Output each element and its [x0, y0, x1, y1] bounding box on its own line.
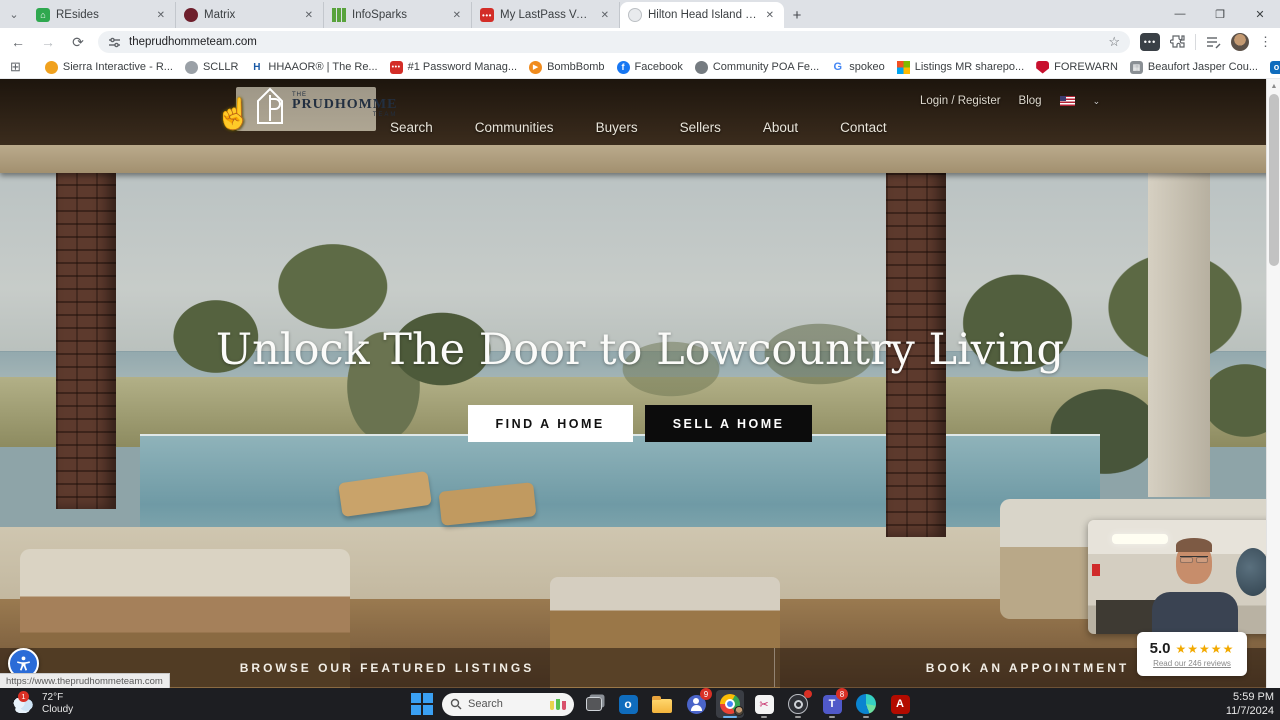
outlook-icon: o — [619, 695, 638, 714]
obs-recording-badge — [804, 690, 812, 698]
bookmark-bombbomb[interactable]: ▶BombBomb — [525, 60, 608, 75]
windows-logo-icon — [410, 692, 434, 716]
weather-temp: 72°F — [42, 692, 73, 705]
facebook-icon: f — [617, 61, 630, 74]
taskbar-clock[interactable]: 5:59 PM 11/7/2024 — [1226, 688, 1274, 720]
teams-badge: 8 — [836, 688, 848, 700]
logo-name: PRUDHOMME — [292, 98, 397, 112]
running-indicator — [897, 716, 903, 719]
reviews-badge: 5.0 ★★★★★ Read our 246 reviews — [1137, 632, 1247, 676]
bookmark-scllr[interactable]: SCLLR — [181, 60, 242, 75]
acrobat-icon: A — [891, 695, 910, 714]
taskbar-search-box[interactable]: Search — [442, 693, 574, 716]
running-indicator — [761, 716, 767, 719]
bookmark-label: Sierra Interactive - R... — [63, 61, 173, 73]
hero-photo-ceiling — [0, 79, 1280, 145]
webcam-exit-sign — [1092, 564, 1100, 576]
webcam-person-shirt — [1152, 592, 1238, 634]
nav-item-communities[interactable]: Communities — [475, 120, 554, 135]
sierra-icon — [45, 61, 58, 74]
clock-time: 5:59 PM — [1233, 690, 1274, 704]
google-icon: G — [831, 61, 844, 74]
weather-notification-badge: 1 — [18, 691, 29, 702]
accessibility-person-icon — [15, 655, 32, 672]
obs-taskbar-button[interactable] — [784, 690, 812, 718]
chrome-profile-mini-avatar — [734, 706, 744, 716]
scllr-icon — [185, 61, 198, 74]
clock-date: 11/7/2024 — [1226, 704, 1274, 718]
apps-grid-icon[interactable]: ⊞ — [10, 59, 21, 75]
task-view-button[interactable] — [580, 690, 608, 718]
webcam-person-hair — [1176, 538, 1212, 552]
bookmark-beaufort-jasper[interactable]: ▦Beaufort Jasper Cou... — [1126, 60, 1262, 75]
bookmark-label: Listings MR sharepo... — [915, 61, 1024, 73]
reload-icon[interactable]: ⟳ — [68, 34, 88, 51]
running-indicator — [723, 716, 737, 719]
chrome-taskbar-button[interactable] — [716, 690, 744, 718]
logo-text: THE PRUDHOMME TEAM — [292, 92, 397, 118]
site-info-tune-icon[interactable] — [108, 36, 121, 49]
tab-title: My LastPass Vault — [500, 9, 593, 21]
back-icon[interactable]: ← — [8, 34, 28, 50]
bookmark-label: spokeo — [849, 61, 884, 73]
building-icon: ▦ — [1130, 61, 1143, 74]
browser-tab-strip: ⌄ ⌂ REsides ✕ Matrix ✕ InfoSparks ✕ ••• … — [0, 0, 1280, 28]
bookmark-label: Community POA Fe... — [713, 61, 819, 73]
webcam-doorway — [1096, 600, 1156, 634]
teams-taskbar-button[interactable]: 8T — [818, 690, 846, 718]
file-explorer-icon — [652, 699, 672, 713]
tab-close-icon[interactable]: ✕ — [764, 10, 776, 21]
lastpass-favicon: ••• — [480, 8, 494, 22]
webcam-person-glasses — [1180, 556, 1208, 563]
site-nav: Search Communities Buyers Sellers About … — [390, 120, 887, 135]
read-reviews-link[interactable]: Read our 246 reviews — [1153, 659, 1231, 668]
resides-favicon: ⌂ — [36, 8, 50, 22]
house-logo-icon — [250, 83, 290, 127]
toolbar-divider — [1195, 34, 1196, 50]
site-logo[interactable]: THE PRUDHOMME TEAM — [250, 83, 397, 127]
nav-item-sellers[interactable]: Sellers — [680, 120, 721, 135]
site-favicon — [628, 8, 642, 22]
us-flag-icon[interactable] — [1060, 96, 1075, 106]
profile-avatar[interactable] — [1231, 33, 1249, 51]
scrollbar-up-arrow-icon[interactable]: ▲ — [1267, 79, 1280, 93]
bookmark-forewarn[interactable]: FOREWARN — [1032, 60, 1122, 75]
bookmark-label: BombBomb — [547, 61, 604, 73]
browser-toolbar: ← → ⟳ theprudhommeteam.com ☆ ••• ⋮ — [0, 28, 1280, 56]
webcam-wall-clock — [1236, 548, 1270, 596]
language-chevron-down-icon[interactable]: ⌄ — [1093, 96, 1101, 107]
search-doodle-flasks-icon — [550, 699, 566, 710]
bookmark-hhaaor[interactable]: HHHAAOR® | The Re... — [246, 60, 381, 75]
microsoft-icon — [897, 61, 910, 74]
bottom-links-strip: BROWSE OUR FEATURED LISTINGS BOOK AN APP… — [0, 648, 1280, 687]
snipping-tool-taskbar-button[interactable]: ✂ — [750, 690, 778, 718]
forewarn-shield-icon — [1036, 61, 1049, 74]
webcam-overlay[interactable] — [1088, 520, 1280, 634]
minimize-button[interactable]: — — [1160, 0, 1200, 28]
bookmark-label: FOREWARN — [1054, 61, 1118, 73]
browser-tab-active-hilton-head[interactable]: Hilton Head Island Real Estate ✕ — [620, 2, 784, 28]
scrollbar-thumb[interactable] — [1269, 94, 1279, 266]
lastpass-extension-icon[interactable]: ••• — [1140, 33, 1160, 51]
tab-title: REsides — [56, 9, 149, 21]
teams-classic-badge: 9 — [700, 688, 712, 700]
reading-list-icon[interactable] — [1206, 36, 1221, 49]
nav-item-contact[interactable]: Contact — [840, 120, 887, 135]
url-text[interactable]: theprudhommeteam.com — [129, 36, 1100, 48]
outlook-icon: o — [1270, 61, 1280, 74]
find-a-home-button[interactable]: FIND A HOME — [468, 405, 633, 442]
lastpass-icon: ••• — [390, 61, 403, 74]
bookmark-label: SCLLR — [203, 61, 238, 73]
browser-tab-lastpass[interactable]: ••• My LastPass Vault ✕ — [472, 2, 620, 28]
matrix-favicon — [184, 8, 198, 22]
hero-title: Unlock The Door to Lowcountry Living — [0, 325, 1280, 375]
infosparks-favicon — [332, 8, 346, 22]
nav-item-about[interactable]: About — [763, 120, 798, 135]
running-indicator — [829, 716, 835, 719]
weather-condition: Cloudy — [42, 704, 73, 717]
tab-close-icon[interactable]: ✕ — [303, 10, 315, 21]
blog-link[interactable]: Blog — [1019, 95, 1042, 107]
address-bar[interactable]: theprudhommeteam.com ☆ — [98, 31, 1130, 53]
tab-title: Matrix — [204, 9, 297, 21]
bookmark-spokeo[interactable]: Gspokeo — [827, 60, 888, 75]
start-button[interactable] — [408, 690, 436, 718]
browser-tab-resides[interactable]: ⌂ REsides ✕ — [28, 2, 176, 28]
login-register-link[interactable]: Login / Register — [920, 95, 1001, 107]
maximize-button[interactable]: ❐ — [1200, 0, 1240, 28]
star-rating-icons: ★★★★★ — [1176, 642, 1235, 656]
extensions-puzzle-icon[interactable] — [1170, 35, 1185, 50]
status-bar-url-tooltip: https://www.theprudhommeteam.com — [0, 673, 170, 688]
bookmark-password-manager[interactable]: •••#1 Password Manag... — [386, 60, 521, 75]
hero-photo-beam — [0, 143, 1280, 173]
browser-menu-kebab-icon[interactable]: ⋮ — [1259, 34, 1272, 50]
windows-taskbar: 1 72°F Cloudy Search o 9 ✂ 8T A — [0, 688, 1280, 720]
cta-row: FIND A HOME SELL A HOME — [0, 405, 1280, 442]
review-score: 5.0 — [1150, 640, 1171, 657]
webcam-ceiling-light — [1112, 534, 1168, 544]
bookmark-facebook[interactable]: fFacebook — [613, 60, 687, 75]
reviews-score-row: 5.0 ★★★★★ — [1150, 640, 1235, 657]
tab-close-icon[interactable]: ✕ — [451, 10, 463, 21]
tab-title: Hilton Head Island Real Estate — [648, 9, 758, 21]
new-tab-button[interactable]: + — [784, 2, 810, 28]
flag-union — [1060, 96, 1066, 101]
bookmark-community-poa[interactable]: Community POA Fe... — [691, 60, 823, 75]
nav-item-buyers[interactable]: Buyers — [596, 120, 638, 135]
bookmark-label: Facebook — [635, 61, 683, 73]
acrobat-taskbar-button[interactable]: A — [886, 690, 914, 718]
taskbar-center-group: Search o 9 ✂ 8T A — [408, 688, 914, 720]
window-controls: — ❐ ✕ — [1160, 0, 1280, 28]
bookmark-label: Beaufort Jasper Cou... — [1148, 61, 1258, 73]
bookmarks-bar: ⊞ Sierra Interactive - R... SCLLR HHHAAO… — [0, 56, 1280, 79]
browser-tab-infosparks[interactable]: InfoSparks ✕ — [324, 2, 472, 28]
bookmark-raveis-email[interactable]: oRaveis EMail - Outlo... — [1266, 60, 1280, 75]
search-placeholder: Search — [468, 698, 544, 710]
file-explorer-taskbar-button[interactable] — [648, 690, 676, 718]
running-indicator — [863, 716, 869, 719]
bookmark-label: HHAAOR® | The Re... — [268, 61, 377, 73]
taskbar-weather-widget[interactable]: 1 72°F Cloudy — [0, 692, 120, 717]
hero-photo-pool — [140, 434, 1100, 534]
weather-text: 72°F Cloudy — [42, 692, 73, 717]
bookmark-sierra[interactable]: Sierra Interactive - R... — [41, 60, 177, 75]
running-indicator — [795, 716, 801, 719]
teams-classic-taskbar-button[interactable]: 9 — [682, 690, 710, 718]
edge-icon — [856, 694, 876, 714]
highlighted-cursor-icon: ☝ — [215, 97, 252, 132]
cloud-weather-icon: 1 — [10, 696, 36, 713]
tab-title: InfoSparks — [352, 9, 445, 21]
hhaaor-icon: H — [250, 61, 263, 74]
tab-close-icon[interactable]: ✕ — [599, 10, 611, 21]
bookmark-label: #1 Password Manag... — [408, 61, 517, 73]
search-icon — [450, 698, 462, 710]
close-button[interactable]: ✕ — [1240, 0, 1280, 28]
sell-a-home-button[interactable]: SELL A HOME — [645, 405, 813, 442]
snipping-tool-icon: ✂ — [755, 695, 774, 714]
page-scrollbar[interactable]: ▲ — [1266, 79, 1280, 688]
nav-item-search[interactable]: Search — [390, 120, 433, 135]
bombbomb-icon: ▶ — [529, 61, 542, 74]
tab-search-chevron-icon[interactable]: ⌄ — [0, 0, 28, 28]
bookmark-listings-sharepoint[interactable]: Listings MR sharepo... — [893, 60, 1028, 75]
forward-icon[interactable]: → — [38, 34, 58, 50]
logo-team: TEAM — [292, 112, 397, 118]
edge-taskbar-button[interactable] — [852, 690, 880, 718]
page-viewport: THE PRUDHOMME TEAM Search Communities Bu… — [0, 79, 1280, 688]
outlook-taskbar-button[interactable]: o — [614, 690, 642, 718]
community-icon — [695, 61, 708, 74]
bookmark-star-icon[interactable]: ☆ — [1108, 34, 1120, 50]
task-view-icon — [586, 697, 602, 711]
site-topbar-links: Login / Register Blog ⌄ — [920, 95, 1100, 107]
desktop-screen: ⌄ ⌂ REsides ✕ Matrix ✕ InfoSparks ✕ ••• … — [0, 0, 1280, 720]
browser-tab-matrix[interactable]: Matrix ✕ — [176, 2, 324, 28]
tab-close-icon[interactable]: ✕ — [155, 10, 167, 21]
